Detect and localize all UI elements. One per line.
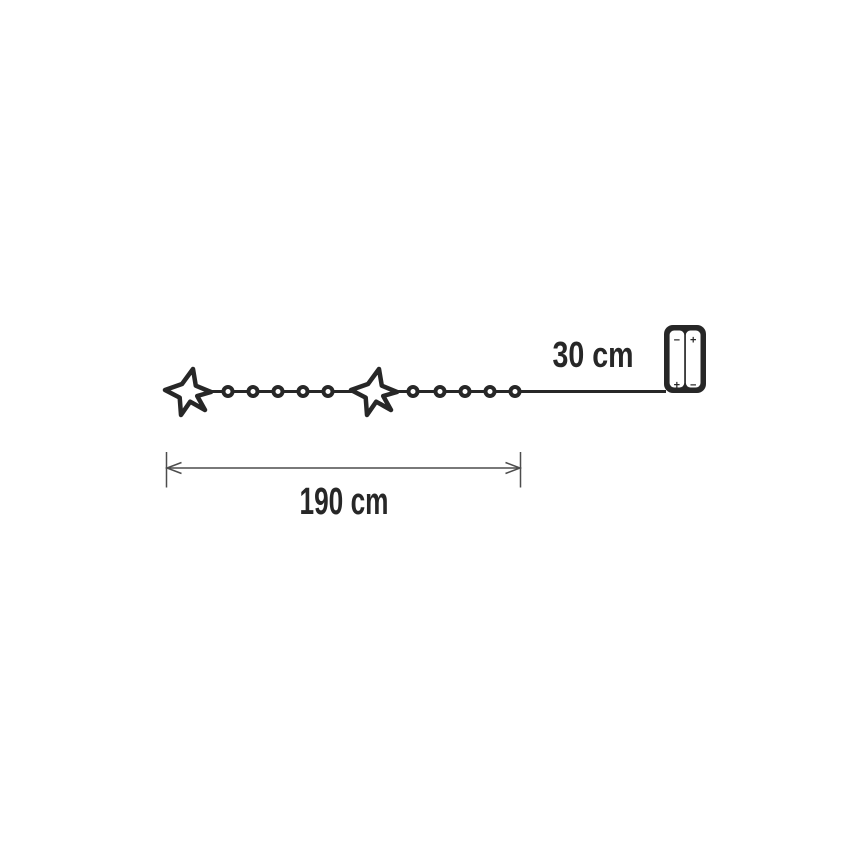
battery-right-bottom-polarity-icon: −	[690, 380, 696, 392]
battery-box: − + + −	[664, 325, 706, 393]
bulb-light	[436, 387, 445, 396]
bulb-light	[409, 387, 418, 396]
bulb-light	[511, 387, 520, 396]
string-length-dimension: 190 cm	[167, 452, 521, 523]
bulb-light	[486, 387, 495, 396]
string-length-label: 190 cm	[300, 481, 389, 523]
bulb-light	[274, 387, 283, 396]
battery-left-bottom-polarity-icon: +	[674, 380, 680, 392]
light-string	[165, 369, 666, 415]
bulb-light	[461, 387, 470, 396]
star-light	[351, 369, 397, 415]
light-chain-dimension-diagram: − + + − 30 cm 190 cm	[0, 0, 868, 868]
battery-right-top-polarity-icon: +	[690, 335, 696, 347]
bulb-light	[249, 387, 258, 396]
star-light	[165, 369, 211, 415]
battery-left-top-polarity-icon: −	[674, 335, 680, 347]
bulb-light	[299, 387, 308, 396]
diagram-canvas: − + + − 30 cm 190 cm	[0, 0, 868, 868]
bulb-light	[324, 387, 333, 396]
lead-length-label: 30 cm	[553, 334, 634, 375]
bulb-light	[224, 387, 233, 396]
